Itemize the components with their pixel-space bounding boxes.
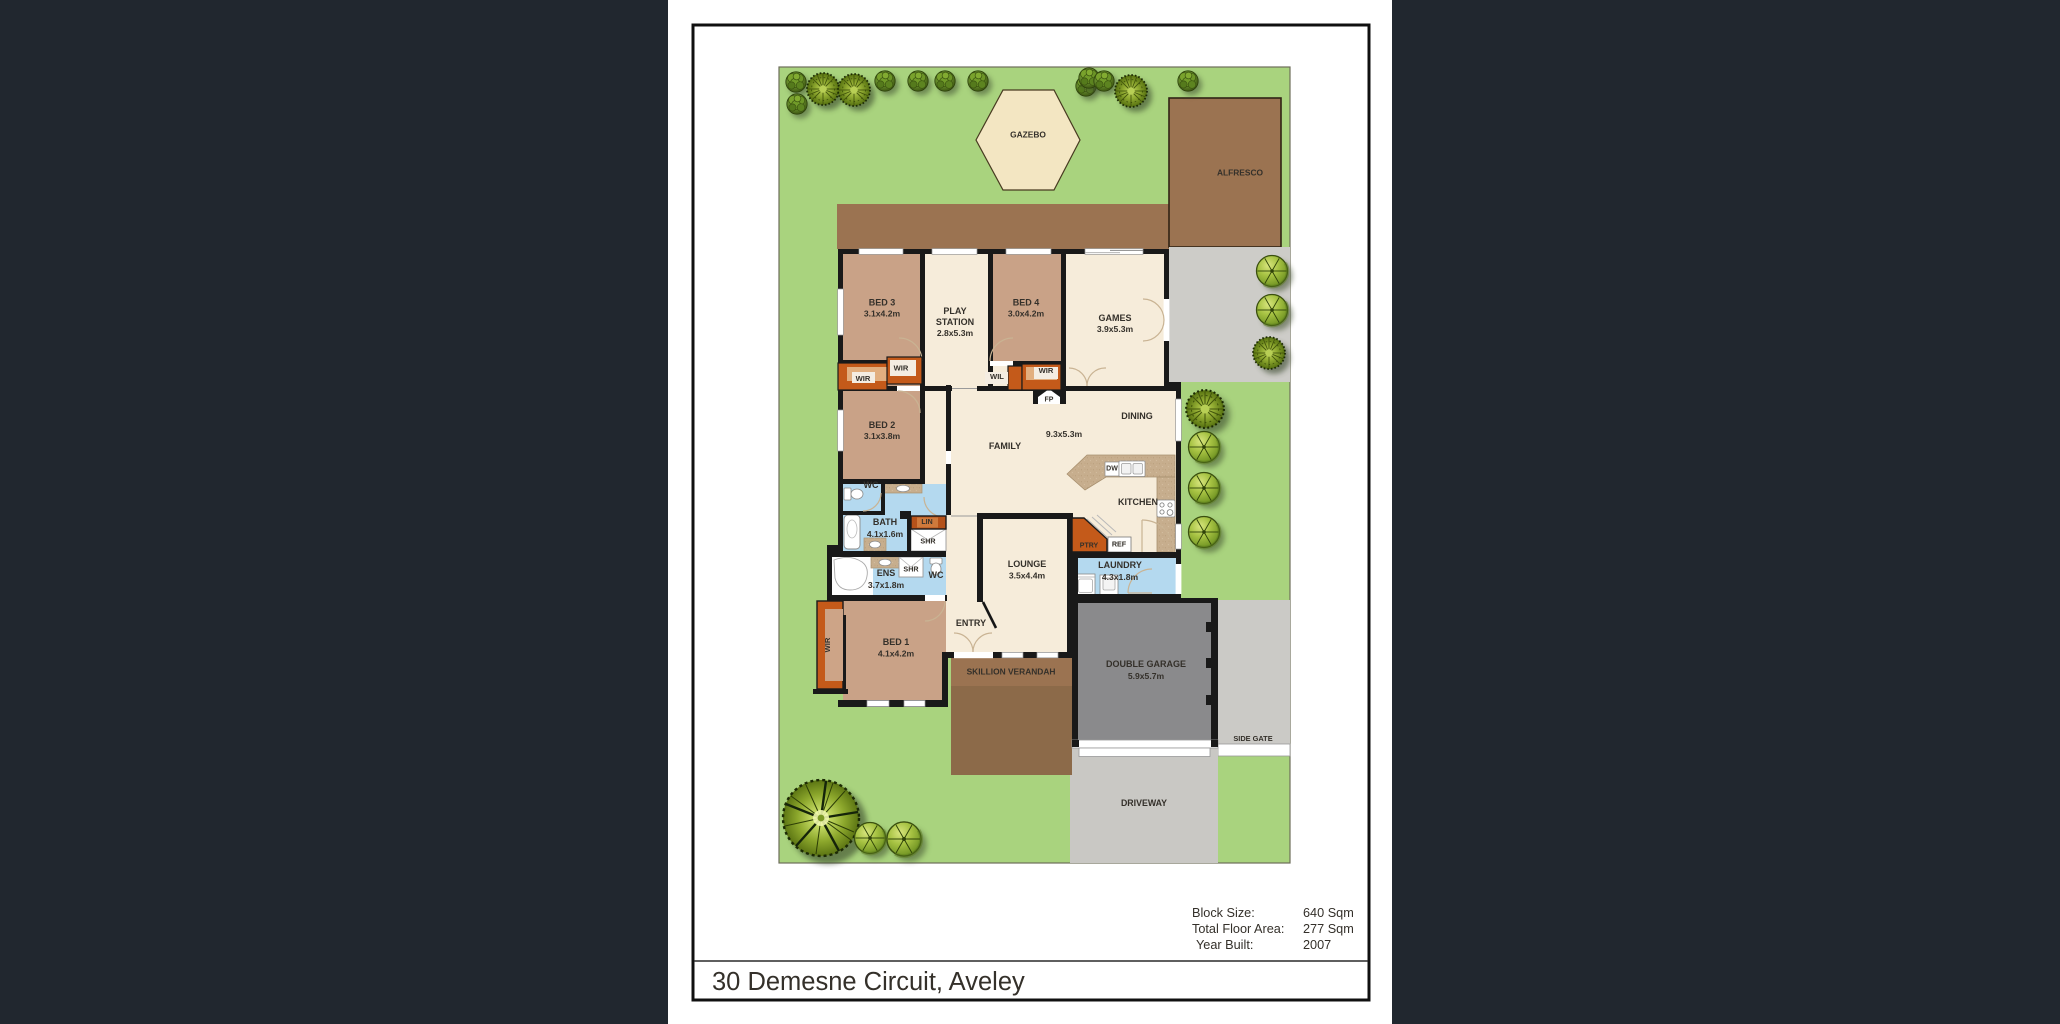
svg-text:2007: 2007 [1303, 938, 1331, 952]
svg-text:LOUNGE: LOUNGE [1008, 559, 1047, 569]
svg-text:3.7x1.8m: 3.7x1.8m [868, 580, 905, 590]
svg-text:4.3x1.8m: 4.3x1.8m [1102, 572, 1139, 582]
svg-text:REF: REF [1112, 540, 1127, 549]
svg-text:3.1x3.8m: 3.1x3.8m [864, 431, 901, 441]
svg-text:4.1x4.2m: 4.1x4.2m [878, 649, 915, 659]
svg-text:FAMILY: FAMILY [989, 441, 1021, 451]
svg-text:WIR: WIR [894, 364, 909, 373]
svg-text:9.3x5.3m: 9.3x5.3m [1046, 429, 1083, 439]
svg-text:WIR: WIR [823, 637, 832, 652]
svg-text:KITCHEN: KITCHEN [1118, 497, 1158, 507]
svg-text:Block Size:: Block Size: [1192, 906, 1255, 920]
svg-text:SKILLION VERANDAH: SKILLION VERANDAH [967, 667, 1056, 677]
svg-text:3.5x4.4m: 3.5x4.4m [1009, 571, 1046, 581]
svg-text:GAZEBO: GAZEBO [1010, 130, 1046, 140]
svg-text:WIR: WIR [1039, 366, 1054, 375]
svg-text:3.1x4.2m: 3.1x4.2m [864, 309, 901, 319]
svg-text:LIN: LIN [921, 519, 932, 526]
svg-text:BATH: BATH [873, 517, 897, 527]
svg-text:PTRY: PTRY [1080, 543, 1099, 550]
svg-text:3.0x4.2m: 3.0x4.2m [1008, 309, 1045, 319]
svg-text:ENS: ENS [877, 568, 896, 578]
svg-text:WIR: WIR [856, 374, 871, 383]
svg-text:WIL: WIL [990, 372, 1004, 381]
svg-text:5.9x5.7m: 5.9x5.7m [1128, 671, 1165, 681]
svg-text:4.1x1.6m: 4.1x1.6m [867, 529, 904, 539]
svg-text:FP: FP [1045, 397, 1054, 404]
svg-text:PLAY: PLAY [943, 306, 966, 316]
svg-text:STATION: STATION [936, 317, 974, 327]
svg-text:Year Built:: Year Built: [1196, 938, 1253, 952]
svg-text:DINING: DINING [1121, 411, 1153, 421]
svg-text:ALFRESCO: ALFRESCO [1217, 168, 1264, 178]
svg-text:277 Sqm: 277 Sqm [1303, 922, 1354, 936]
svg-text:BED 2: BED 2 [869, 420, 896, 430]
svg-text:SIDE GATE: SIDE GATE [1233, 734, 1272, 743]
svg-text:DOUBLE GARAGE: DOUBLE GARAGE [1106, 659, 1186, 669]
svg-text:BED 1: BED 1 [883, 637, 910, 647]
svg-text:LAUNDRY: LAUNDRY [1098, 560, 1142, 570]
svg-text:640 Sqm: 640 Sqm [1303, 906, 1354, 920]
svg-text:3.9x5.3m: 3.9x5.3m [1097, 324, 1134, 334]
svg-text:30 Demesne Circuit, Aveley: 30 Demesne Circuit, Aveley [712, 968, 1025, 996]
svg-text:BED 4: BED 4 [1013, 298, 1040, 308]
svg-text:DW: DW [1106, 466, 1118, 473]
svg-text:ENTRY: ENTRY [956, 618, 986, 628]
svg-text:SHR: SHR [920, 537, 936, 546]
svg-text:WC: WC [929, 570, 944, 580]
svg-text:2.8x5.3m: 2.8x5.3m [937, 328, 974, 338]
svg-text:SHR: SHR [903, 565, 919, 574]
svg-text:WC: WC [864, 480, 879, 490]
svg-text:DRIVEWAY: DRIVEWAY [1121, 798, 1167, 808]
svg-text:BED 3: BED 3 [869, 298, 896, 308]
svg-text:GAMES: GAMES [1098, 313, 1131, 323]
svg-text:Total Floor Area:: Total Floor Area: [1192, 922, 1284, 936]
